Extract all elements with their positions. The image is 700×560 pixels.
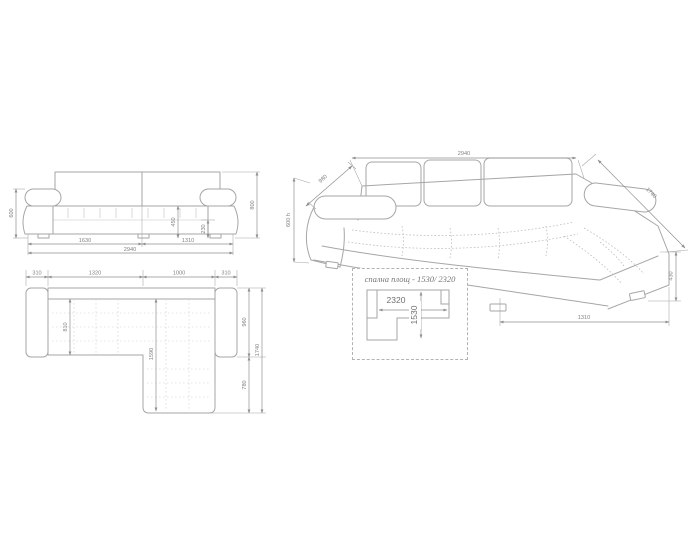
technical-drawing-page: { "colors": { "line": "#a6a6a6", "dimens… <box>0 0 700 560</box>
dim-front-left-width: 1630 <box>79 238 91 244</box>
foot <box>629 291 645 301</box>
dim-sleeping-width: 2320 <box>387 295 406 305</box>
front-view: 600 800 450 230 1630 1310 2940 <box>8 163 266 265</box>
sleeping-area-note: спална площ - 1530/ 2320 <box>355 274 465 284</box>
dim-plan-seat-depth: 810 <box>63 322 69 331</box>
dim-front-right-height: 800 <box>250 200 256 209</box>
dim-plan-inner-depth: 1590 <box>149 348 155 360</box>
plan-left-armrest <box>26 288 48 357</box>
dim-persp-base-height: 430 <box>669 271 675 280</box>
back-pillow <box>424 160 481 206</box>
foot <box>490 304 506 311</box>
dim-front-seat-height: 450 <box>171 217 177 226</box>
left-armrest-body <box>23 206 53 234</box>
back-pillow <box>484 158 572 206</box>
dim-persp-chaise-length: 1310 <box>578 315 590 321</box>
foot <box>326 261 339 269</box>
left-armrest-pillow <box>314 196 396 219</box>
dim-plan-depth-lower: 780 <box>242 380 248 389</box>
dim-plan-depth-total: 1740 <box>255 344 261 356</box>
dim-plan-chaise-width: 1000 <box>173 271 185 277</box>
dim-plan-depth-upper: 960 <box>242 317 248 326</box>
foot <box>38 234 49 238</box>
dim-plan-body-width: 1320 <box>89 271 101 277</box>
dim-front-base-height: 230 <box>201 224 207 233</box>
dim-sleeping-depth: 1530 <box>409 305 419 324</box>
mini-plan-armrest <box>367 290 377 318</box>
plan-sofa-outline <box>26 288 237 413</box>
dim-front-total-width: 2940 <box>124 247 136 253</box>
dim-front-left-height: 600 <box>9 208 15 217</box>
dim-plan-arm-left: 310 <box>32 271 41 277</box>
dim-persp-height: 600 h <box>286 213 292 227</box>
plan-view: 310 1320 1000 310 810 1590 960 780 1740 <box>8 258 270 430</box>
dim-plan-arm-right: 310 <box>221 271 230 277</box>
perspective-view: 2940 980 600 h 1740 430 1310 <box>278 136 698 366</box>
mini-plan-side <box>441 290 449 304</box>
dim-front-right-width: 1310 <box>182 238 194 244</box>
foot <box>138 234 149 238</box>
left-armrest-pillow <box>25 189 61 206</box>
foot <box>210 234 221 238</box>
sleeping-area-inset: спална площ - 1530/ 2320 2320 1530 <box>352 268 468 360</box>
sleeping-area-mini-plan: 2320 1530 <box>353 284 467 348</box>
right-armrest-pillow <box>200 189 236 206</box>
plan-right-armrest <box>215 288 237 357</box>
dim-persp-total-width: 2940 <box>458 151 470 157</box>
dim-persp-back-segment: 980 <box>318 174 329 185</box>
